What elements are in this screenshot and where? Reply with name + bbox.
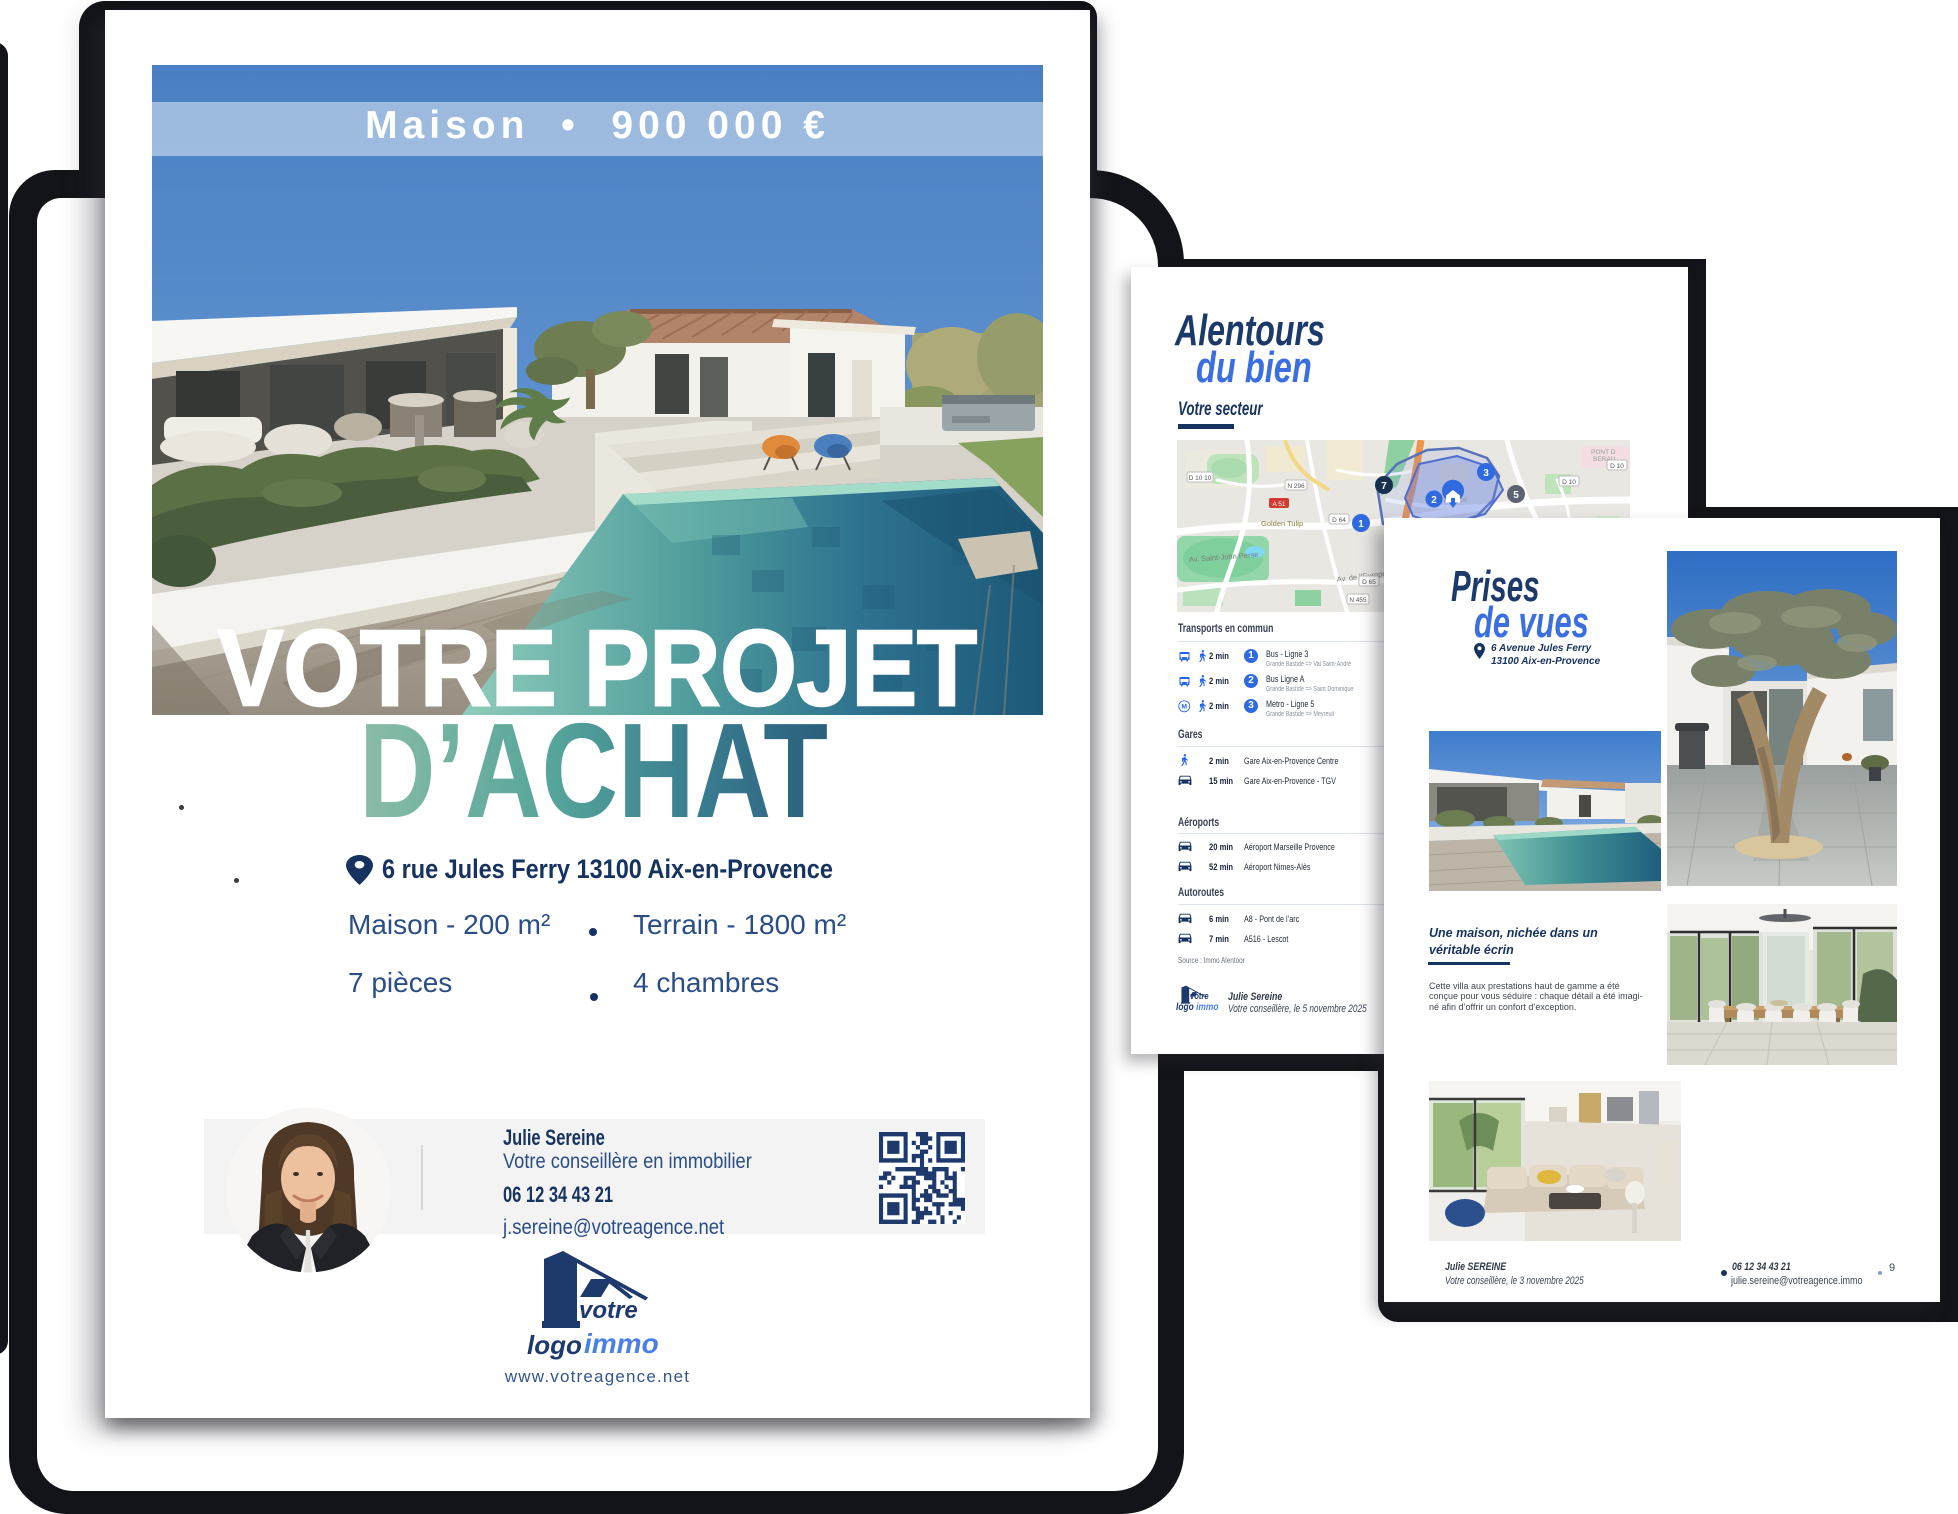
svg-text:D 10: D 10 (1610, 463, 1624, 470)
svg-text:N 296: N 296 (1287, 483, 1305, 490)
svg-text:D 64: D 64 (1332, 517, 1346, 524)
svg-text:5: 5 (1513, 490, 1519, 501)
svg-text:3: 3 (1483, 468, 1489, 479)
svg-text:D 10 10: D 10 10 (1189, 475, 1212, 482)
svg-text:PONT D: PONT D (1591, 449, 1616, 456)
svg-text:7: 7 (1381, 481, 1387, 492)
svg-text:2: 2 (1431, 495, 1437, 506)
svg-text:A 51: A 51 (1272, 501, 1285, 508)
svg-text:N 455: N 455 (1349, 597, 1367, 604)
svg-text:D 65: D 65 (1362, 579, 1376, 586)
svg-text:D 10: D 10 (1562, 479, 1576, 486)
svg-text:M: M (1181, 704, 1187, 711)
svg-text:Golden Tulip: Golden Tulip (1261, 519, 1303, 528)
svg-text:1: 1 (1358, 519, 1364, 530)
